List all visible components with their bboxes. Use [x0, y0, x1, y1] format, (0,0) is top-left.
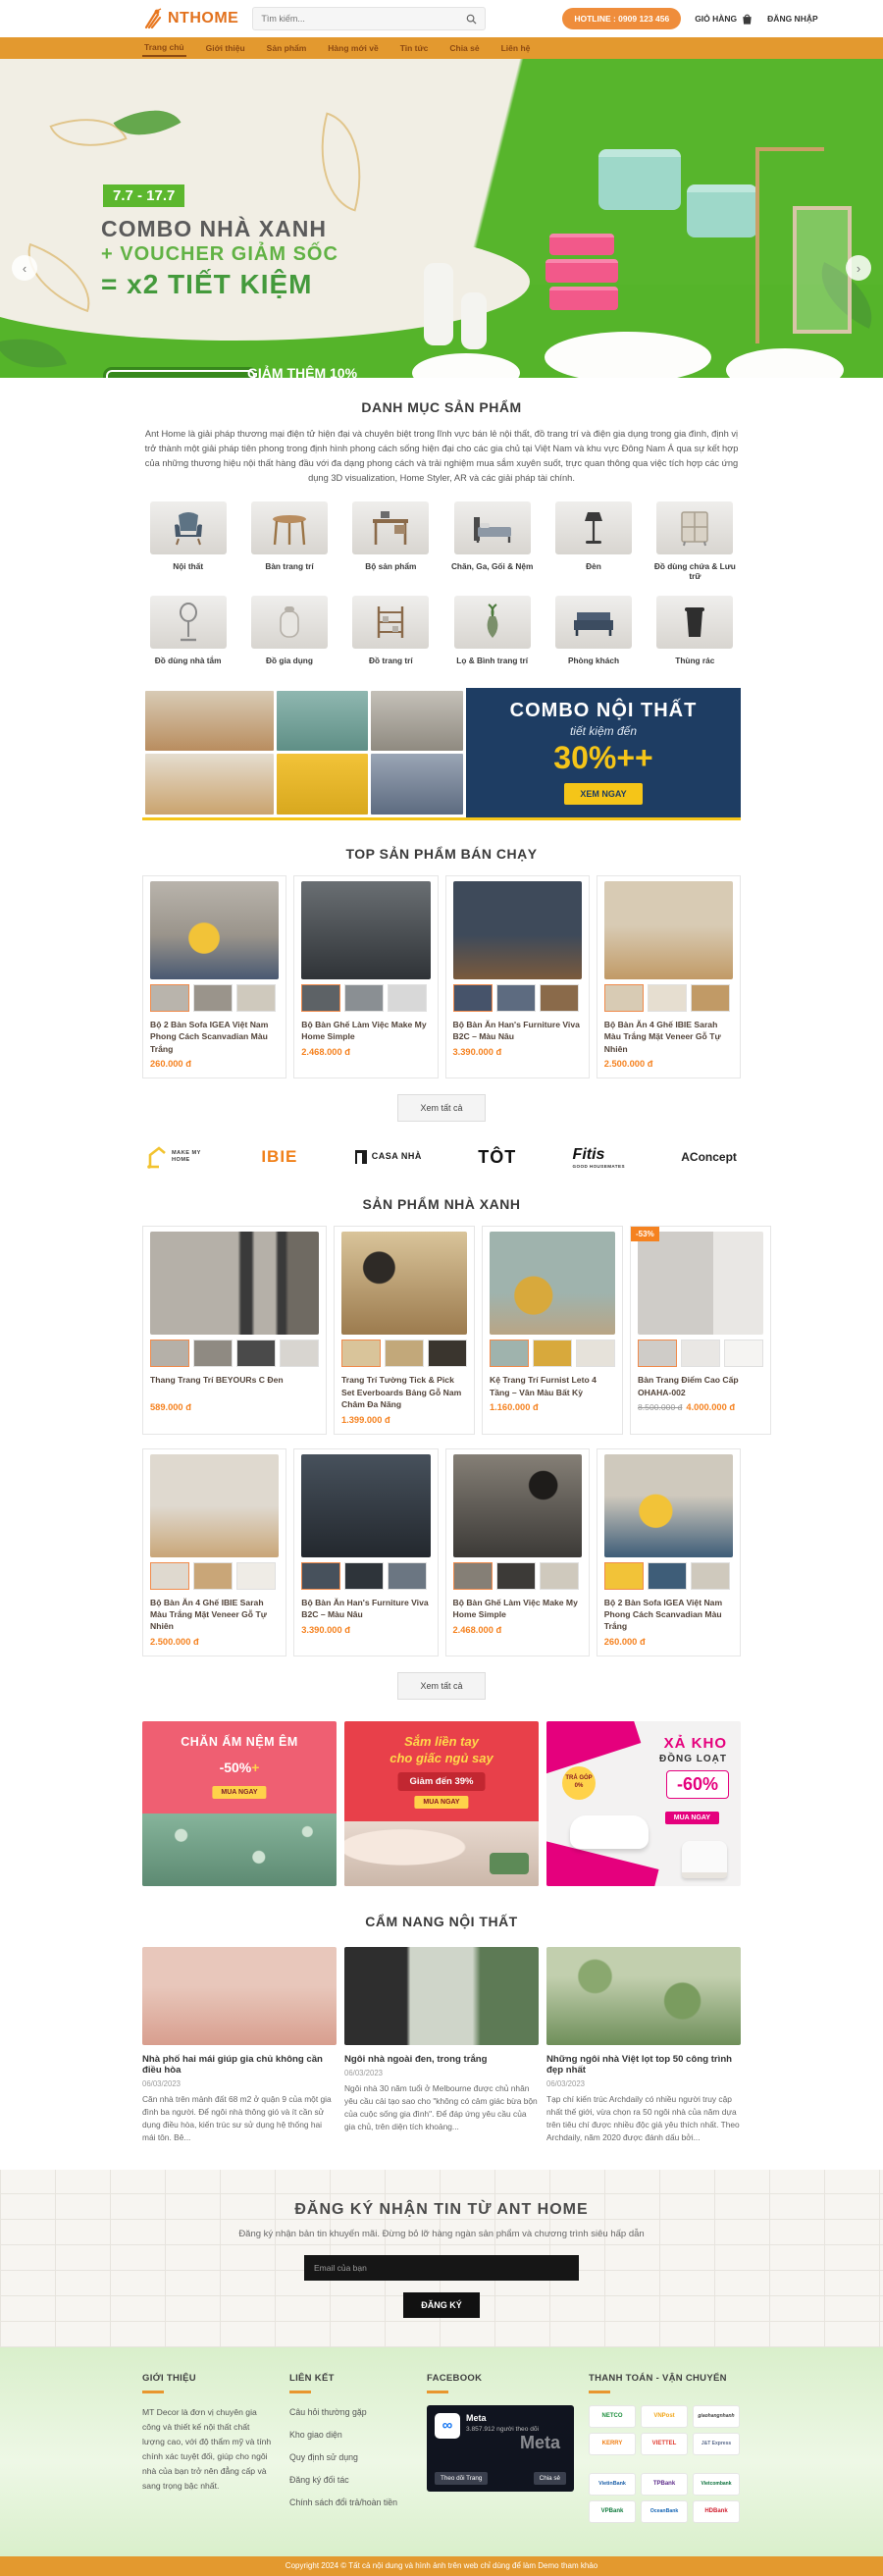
category-armchair-image [150, 501, 227, 554]
product-thumbnail[interactable] [388, 1562, 427, 1590]
nav-item-home[interactable]: Trang chủ [142, 39, 186, 57]
combo-discount: 30%++ [553, 742, 652, 773]
footer-link-terms[interactable]: Quy định sử dụng [289, 2450, 427, 2464]
category-bathroom[interactable]: Đồ dùng nhà tắm [142, 596, 234, 666]
hero-tower-fan-image [424, 263, 453, 345]
category-trash-bins[interactable]: Thùng rác [649, 596, 741, 666]
product-card[interactable]: Bộ Bàn Ăn 4 Ghế IBIE Sarah Màu Trắng Mặt… [597, 875, 741, 1078]
footer-link-faq[interactable]: Câu hỏi thường gặp [289, 2405, 427, 2419]
pillow-photo [490, 1853, 529, 1874]
product-thumbnail[interactable] [496, 984, 536, 1012]
blog-post-title[interactable]: Nhà phố hai mái giúp gia chủ không cần đ… [142, 2054, 337, 2076]
footer-link-returns[interactable]: Chính sách đổi trả/hoàn tiền [289, 2496, 427, 2509]
meta-watermark: Meta [520, 2433, 560, 2453]
search-input[interactable] [261, 14, 466, 24]
bathtub-photo [570, 1815, 649, 1849]
category-grid-row1: Nội thất Bàn trang trí Bộ sản phẩm Chăn,… [142, 501, 741, 583]
meta-logo-icon: ∞ [435, 2413, 460, 2439]
product-price: 260.000 đ [604, 1637, 733, 1647]
categories-description: Ant Home là giải pháp thương mại điện tử… [142, 427, 741, 486]
product-thumbnail[interactable] [385, 1340, 424, 1367]
payment-logo: J&T Express [693, 2433, 740, 2455]
payment-logo: KERRY [589, 2433, 636, 2455]
footer-links-column: LIÊN KẾT Câu hỏi thường gặp Kho giao diệ… [289, 2373, 427, 2523]
brand-tot[interactable]: TÔT [478, 1147, 516, 1168]
product-card[interactable]: Kệ Trang Trí Furnist Leto 4 Tầng – Vân M… [482, 1226, 623, 1434]
promo-title-line1: Sắm liền tay [344, 1733, 539, 1751]
blog-post-date: 06/03/2023 [344, 2069, 539, 2077]
product-name[interactable]: Bộ Bàn Ghế Làm Việc Make My Home Simple [301, 1019, 430, 1043]
product-thumbnail[interactable] [604, 984, 644, 1012]
product-thumbnail[interactable] [428, 1340, 467, 1367]
promo-banner-bedding[interactable]: CHĂN ẤM NỆM ÊM -50%+ MUA NGAY [142, 1721, 337, 1886]
product-price: 3.390.000 đ [301, 1625, 430, 1635]
combo-banner[interactable]: COMBO NỘI THẤT tiết kiệm đến 30%++ XEM N… [142, 688, 741, 820]
copyright-text: Copyright 2024 © Tất cả nội dung và hình… [286, 2561, 597, 2570]
product-thumbnail[interactable] [648, 1562, 687, 1590]
product-thumbnail[interactable] [576, 1340, 615, 1367]
product-card[interactable]: -53% Bàn Trang Điểm Cao Cấp OHAHA-002 8.… [630, 1226, 771, 1434]
product-name[interactable]: Bộ Bàn Ăn Han's Furniture Viva B2C – Màu… [453, 1019, 582, 1043]
category-label: Thùng rác [649, 656, 741, 666]
product-thumbnail[interactable] [638, 1340, 677, 1367]
payment-grid-gap [589, 2460, 740, 2468]
blog-post-image[interactable] [142, 1947, 337, 2045]
product-thumbnail[interactable] [301, 984, 340, 1012]
product-thumbnail[interactable] [193, 1340, 233, 1367]
heading-underline [589, 2391, 610, 2393]
category-label: Bàn trang trí [243, 561, 335, 572]
product-thumbnail[interactable] [496, 1562, 536, 1590]
product-name[interactable]: Trang Trí Tường Tick & Pick Set Everboar… [341, 1374, 467, 1410]
facebook-follow-button[interactable]: Theo dõi Trang [435, 2472, 488, 2485]
nav-item-news[interactable]: Tin tức [398, 40, 431, 56]
product-thumbnail[interactable] [388, 984, 427, 1012]
category-mirror-stand-image [150, 596, 227, 649]
hero-banner[interactable]: 7.7 - 17.7 COMBO NHÀ XANH + VOUCHER GIẢM… [0, 59, 883, 378]
product-card[interactable]: Thang Trang Trí BEYOURs C Đen 589.000 đ [142, 1226, 327, 1434]
product-image[interactable] [341, 1232, 467, 1335]
nav-item-share[interactable]: Chia sẻ [447, 40, 481, 56]
product-thumbnail[interactable] [691, 1562, 730, 1590]
product-name[interactable]: Bộ Bàn Ăn Han's Furniture Viva B2C – Màu… [301, 1597, 430, 1621]
top-products-heading: TOP SẢN PHẨM BÁN CHẠY [142, 846, 741, 862]
category-label: Nội thất [142, 561, 234, 572]
blog-post-date: 06/03/2023 [546, 2079, 741, 2088]
ant-logo-icon [142, 8, 164, 29]
hero-pink-container-image [545, 259, 618, 283]
discount-badge: -53% [631, 1227, 659, 1241]
newsletter-title: ĐĂNG KÝ NHẬN TIN TỪ ANT HOME [0, 2201, 883, 2219]
product-image[interactable] [301, 881, 430, 979]
product-name[interactable]: Bộ Bàn Ăn 4 Ghế IBIE Sarah Màu Trắng Mặt… [150, 1597, 279, 1633]
search-icon[interactable] [466, 14, 477, 25]
facebook-page-name[interactable]: Meta [466, 2413, 487, 2423]
product-name[interactable]: Bộ Bàn Ghế Làm Việc Make My Home Simple [453, 1597, 582, 1621]
payment-logo: TPBank [641, 2473, 688, 2496]
main-navigation: Trang chủ Giới thiệu Sản phẩm Hàng mới v… [0, 37, 883, 59]
product-thumbnail[interactable] [681, 1340, 720, 1367]
payment-logo: NETCO [589, 2405, 636, 2428]
brand-make-my-home[interactable]: MAKE MY HOME [146, 1145, 205, 1169]
product-image[interactable] [490, 1232, 615, 1335]
product-card[interactable]: Bộ 2 Bàn Sofa IGEA Việt Nam Phong Cách S… [597, 1448, 741, 1656]
hero-pink-container-image [549, 234, 614, 255]
brand-ibie[interactable]: IBIE [261, 1147, 297, 1167]
category-trash-bin-image [656, 596, 733, 649]
combo-subtitle: tiết kiệm đến [570, 724, 637, 738]
hero-cooler-box-image [687, 184, 757, 237]
category-grid-row2: Đồ dùng nhà tắm Đồ gia dụng Đồ trang trí… [142, 596, 741, 666]
category-vases[interactable]: Lọ & Bình trang trí [446, 596, 538, 666]
payment-logo: Vietcombank [693, 2473, 740, 2496]
product-name[interactable]: Kệ Trang Trí Furnist Leto 4 Tầng – Vân M… [490, 1374, 615, 1398]
blog-post-date: 06/03/2023 [142, 2079, 337, 2088]
heading-underline [427, 2391, 448, 2393]
blog-post-title[interactable]: Ngôi nhà ngoài đen, trong trắng [344, 2054, 539, 2065]
combo-collage-image [142, 688, 466, 817]
product-image[interactable] [150, 881, 279, 979]
blog-post-excerpt: Ngôi nhà 30 năm tuổi ở Melbourne được ch… [344, 2082, 539, 2133]
product-price: 3.390.000 đ [453, 1047, 582, 1057]
payment-logo: VNPost [641, 2405, 688, 2428]
product-image[interactable] [638, 1232, 763, 1335]
promo-title-line2: ĐỒNG LOẠT [659, 1754, 727, 1764]
product-name[interactable]: Bộ 2 Bàn Sofa IGEA Việt Nam Phong Cách S… [150, 1019, 279, 1055]
blog-post-excerpt: Căn nhà trên mảnh đất 68 m2 ở quận 9 của… [142, 2093, 337, 2144]
category-bed-image [454, 501, 531, 554]
bedding-photo [142, 1814, 337, 1886]
product-image[interactable] [604, 881, 733, 979]
payment-logo: OceanBank [641, 2500, 688, 2523]
armchair-photo [682, 1841, 727, 1878]
promo-banners-row: CHĂN ẤM NỆM ÊM -50%+ MUA NGAY Sắm liền t… [142, 1721, 741, 1886]
blog-post-excerpt: Tạp chí kiến trúc Archdaily có nhiều ngư… [546, 2093, 741, 2144]
footer-link-partner[interactable]: Đăng ký đối tác [289, 2473, 427, 2487]
product-thumbnail[interactable] [344, 984, 384, 1012]
brand-aconcept[interactable]: AConcept [681, 1150, 737, 1164]
newsletter-subtitle: Đăng ký nhận bản tin khuyến mãi. Đừng bỏ… [0, 2229, 883, 2239]
promo-discount: -60% [666, 1770, 729, 1799]
category-decor[interactable]: Đồ trang trí [345, 596, 437, 666]
payment-logos-grid: NETCO VNPost giaohangnhanh KERRY VIETTEL… [589, 2405, 741, 2523]
product-thumbnail[interactable] [280, 1340, 319, 1367]
hotline-button[interactable]: HOTLINE : 0909 123 456 [562, 8, 681, 29]
category-label: Đồ dùng nhà tắm [142, 656, 234, 666]
blog-grid: Nhà phố hai mái giúp gia chủ không cần đ… [142, 1947, 741, 2144]
payment-logo: VietinBank [589, 2473, 636, 2496]
blog-heading: CẨM NANG NỘI THẤT [142, 1914, 741, 1929]
product-thumbnail[interactable] [691, 984, 730, 1012]
promo-title: CHĂN ẤM NỆM ÊM [142, 1735, 337, 1749]
blog-card[interactable]: Những ngôi nhà Việt lọt top 50 công trìn… [546, 1947, 741, 2144]
product-thumbnail[interactable] [648, 984, 687, 1012]
facebook-followers: 3.857.912 người theo dõi [466, 2426, 539, 2433]
product-old-price: 8.500.000 đ [638, 1402, 682, 1412]
promo-title: Sắm liền tay cho giấc ngủ say [344, 1733, 539, 1767]
gold-leaf-decor [303, 112, 378, 211]
copyright-bar: Copyright 2024 © Tất cả nội dung và hình… [0, 2556, 883, 2576]
blog-card[interactable]: Nhà phố hai mái giúp gia chủ không cần đ… [142, 1947, 337, 2144]
category-furniture[interactable]: Nội thất [142, 501, 234, 583]
promo-banner-sleep[interactable]: Sắm liền tay cho giấc ngủ say Giảm đến 3… [344, 1721, 539, 1886]
product-thumbnail[interactable] [453, 1562, 493, 1590]
brand-label: CASA NHÀ [372, 1152, 422, 1162]
category-label: Đèn [547, 561, 639, 572]
facebook-page-widget[interactable]: ∞ Meta 3.857.912 người theo dõi Meta The… [427, 2405, 574, 2492]
category-canister-image [251, 596, 328, 649]
cart-button[interactable]: GIỎ HÀNG [695, 13, 753, 26]
newsletter-submit-button[interactable]: ĐĂNG KÝ [403, 2292, 480, 2318]
newsletter-email-input[interactable] [304, 2255, 579, 2281]
site-logo[interactable]: NTHOME [142, 8, 238, 29]
promo-discount: Giảm đến 39% [398, 1772, 486, 1791]
product-image[interactable] [150, 1454, 279, 1557]
product-card[interactable]: Bộ Bàn Ghế Làm Việc Make My Home Simple … [445, 1448, 590, 1656]
category-lamp-image [555, 501, 632, 554]
top-products-grid: Bộ 2 Bàn Sofa IGEA Việt Nam Phong Cách S… [142, 875, 741, 1078]
hero-shelf-image [793, 206, 852, 334]
product-name[interactable]: Bộ Bàn Ăn 4 Ghế IBIE Sarah Màu Trắng Mặt… [604, 1019, 733, 1055]
product-price: 589.000 đ [150, 1402, 319, 1412]
product-thumbnail[interactable] [150, 1562, 189, 1590]
category-storage[interactable]: Đồ dùng chứa & Lưu trữ [649, 501, 741, 583]
facebook-share-button[interactable]: Chia sẻ [534, 2472, 566, 2485]
footer-links-heading: LIÊN KẾT [289, 2373, 427, 2384]
promo-discount-value: -50% [220, 1760, 252, 1775]
header: NTHOME HOTLINE : 0909 123 456 GIỎ HÀNG Đ… [0, 0, 883, 37]
promo-discount: -50%+ [142, 1755, 337, 1778]
category-label: Chăn, Ga, Gối & Nệm [446, 561, 538, 572]
category-desk-image [352, 501, 429, 554]
login-button[interactable]: ĐĂNG NHẬP [767, 14, 817, 24]
category-table-image [251, 501, 328, 554]
hero-pedestal [545, 332, 711, 378]
hero-promo-title: GIẢM THÊM 10% [247, 365, 357, 378]
product-thumbnail[interactable] [533, 1340, 572, 1367]
login-label: ĐĂNG NHẬP [767, 14, 817, 24]
footer-facebook-heading: FACEBOOK [427, 2373, 589, 2384]
view-all-button[interactable]: Xem tất cả [397, 1094, 485, 1122]
product-thumbnail[interactable] [301, 1562, 340, 1590]
green-products-heading: SẢN PHẨM NHÀ XANH [142, 1196, 741, 1212]
gold-leaf-decor [49, 102, 127, 163]
product-price: 2.468.000 đ [301, 1047, 430, 1057]
footer-link-themes[interactable]: Kho giao diện [289, 2428, 427, 2442]
category-lamps[interactable]: Đèn [547, 501, 639, 583]
category-label: Đồ trang trí [345, 656, 437, 666]
product-thumbnail[interactable] [236, 984, 276, 1012]
product-price: 2.500.000 đ [604, 1059, 733, 1069]
brand-label: MAKE MY HOME [172, 1150, 205, 1165]
logo-text: NTHOME [168, 10, 238, 27]
product-price: 1.160.000 đ [490, 1402, 615, 1412]
product-image[interactable] [150, 1232, 319, 1335]
magenta-ribbon [546, 1721, 641, 1779]
product-thumbnail[interactable] [453, 984, 493, 1012]
promo-discount-suffix: + [251, 1760, 259, 1775]
category-sofa-image [555, 596, 632, 649]
blog-card[interactable]: Ngôi nhà ngoài đen, trong trắng 06/03/20… [344, 1947, 539, 2144]
promo-title-line2: cho giấc ngủ say [344, 1750, 539, 1767]
cart-label: GIỎ HÀNG [695, 14, 737, 24]
blog-post-title[interactable]: Những ngôi nhà Việt lọt top 50 công trìn… [546, 2054, 741, 2076]
product-thumbnail[interactable] [540, 1562, 579, 1590]
product-thumbnail[interactable] [344, 1562, 384, 1590]
footer: GIỚI THIỆU MT Decor là đơn vị chuyên gia… [0, 2347, 883, 2556]
product-thumbnail[interactable] [341, 1340, 381, 1367]
hero-pink-container-image [549, 287, 618, 310]
product-thumbnail[interactable] [604, 1562, 644, 1590]
payment-logo: VIETTEL [641, 2433, 688, 2455]
brand-sublabel: GOOD HOUSEMATES [573, 1164, 625, 1169]
category-decor-table[interactable]: Bàn trang trí [243, 501, 335, 583]
hero-cooler-box-image [598, 149, 681, 210]
combo-cta-button[interactable]: XEM NGAY [564, 783, 642, 805]
heading-underline [289, 2391, 311, 2393]
product-card[interactable]: Bộ 2 Bàn Sofa IGEA Việt Nam Phong Cách S… [142, 875, 286, 1078]
footer-payment-heading: THANH TOÁN - VẬN CHUYỂN [589, 2373, 741, 2384]
blog-post-image[interactable] [546, 1947, 741, 2045]
brand-label: Fitis [573, 1146, 605, 1163]
green-products-grid-row1: Thang Trang Trí BEYOURs C Đen 589.000 đ … [142, 1226, 741, 1434]
product-price: 2.468.000 đ [453, 1625, 582, 1635]
product-price: 1.399.000 đ [341, 1415, 467, 1425]
product-new-price: 4.000.000 đ [686, 1402, 735, 1412]
carousel-prev-icon[interactable]: ‹ [12, 255, 37, 281]
product-thumbnail[interactable] [150, 1340, 189, 1367]
footer-payment-column: THANH TOÁN - VẬN CHUYỂN NETCO VNPost gia… [589, 2373, 741, 2523]
category-label: Phòng khách [547, 656, 639, 666]
product-card[interactable]: Bộ Bàn Ăn Han's Furniture Viva B2C – Màu… [445, 875, 590, 1078]
product-thumbnail[interactable] [540, 984, 579, 1012]
category-cabinet-image [656, 501, 733, 554]
category-label: Bộ sản phẩm [345, 561, 437, 572]
category-shelf-image [352, 596, 429, 649]
payment-logo: giaohangnhanh [693, 2405, 740, 2428]
category-product-set[interactable]: Bộ sản phẩm [345, 501, 437, 583]
product-name[interactable]: Thang Trang Trí BEYOURs C Đen [150, 1374, 319, 1398]
promo-title-line1: XẢ KHO [664, 1735, 727, 1752]
green-leaf-decor [114, 93, 182, 151]
category-label: Đồ gia dụng [243, 656, 335, 666]
carousel-next-icon[interactable]: › [846, 255, 871, 281]
categories-heading: DANH MỤC SẢN PHẨM [142, 399, 741, 415]
product-thumbnail[interactable] [724, 1340, 763, 1367]
category-vase-image [454, 596, 531, 649]
product-card[interactable]: Bộ Bàn Ăn Han's Furniture Viva B2C – Màu… [293, 1448, 438, 1656]
product-image[interactable] [604, 1454, 733, 1557]
promo-cta-button[interactable]: MUA NGAY [212, 1786, 266, 1799]
hero-tower-fan-image [461, 292, 487, 349]
product-image[interactable] [453, 881, 582, 979]
hero-title-line3: = x2 TIẾT KIỆM [101, 269, 313, 300]
category-label: Đồ dùng chứa & Lưu trữ [649, 561, 741, 583]
hero-date-badge: 7.7 - 17.7 [103, 184, 184, 207]
product-thumbnail[interactable] [236, 1340, 276, 1367]
green-products-grid-row2: Bộ Bàn Ăn 4 Ghế IBIE Sarah Màu Trắng Mặt… [142, 1448, 741, 1656]
search-bar[interactable] [252, 7, 486, 30]
product-card[interactable]: Bộ Bàn Ghế Làm Việc Make My Home Simple … [293, 875, 438, 1078]
product-card[interactable]: Trang Trí Tường Tick & Pick Set Everboar… [334, 1226, 475, 1434]
product-image[interactable] [453, 1454, 582, 1557]
footer-about-heading: GIỚI THIỆU [142, 2373, 289, 2384]
footer-about-column: GIỚI THIỆU MT Decor là đơn vị chuyên gia… [142, 2373, 289, 2523]
product-thumbnail[interactable] [490, 1340, 529, 1367]
promo-cta-button[interactable]: MUA NGAY [414, 1796, 468, 1809]
brand-fitis[interactable]: FitisGOOD HOUSEMATES [573, 1146, 625, 1169]
view-all-button[interactable]: Xem tất cả [397, 1672, 485, 1700]
footer-facebook-column: FACEBOOK ∞ Meta 3.857.912 người theo dõi… [427, 2373, 589, 2523]
hero-title-line2: + VOUCHER GIẢM SỐC [101, 243, 338, 266]
product-price: 2.500.000 đ [150, 1637, 279, 1647]
promo-banner-clearance[interactable]: TRẢ GÓP 0% XẢ KHO ĐỒNG LOẠT -60% MUA NGA… [546, 1721, 741, 1886]
promo-cta-button[interactable]: MUA NGAY [665, 1812, 719, 1824]
product-card[interactable]: Bộ Bàn Ăn 4 Ghế IBIE Sarah Màu Trắng Mặt… [142, 1448, 286, 1656]
nav-item-new-arrivals[interactable]: Hàng mới về [326, 40, 380, 56]
product-price: 260.000 đ [150, 1059, 279, 1069]
product-name[interactable]: Bộ 2 Bàn Sofa IGEA Việt Nam Phong Cách S… [604, 1597, 733, 1633]
hero-coupon-code-box[interactable]: NHẬP MÃ: SPACET10 [106, 370, 255, 378]
product-name[interactable]: Bàn Trang Điểm Cao Cấp OHAHA-002 [638, 1374, 763, 1398]
category-appliances[interactable]: Đồ gia dụng [243, 596, 335, 666]
product-thumbnail[interactable] [193, 1562, 233, 1590]
installment-badge: TRẢ GÓP 0% [562, 1766, 596, 1800]
door-icon [354, 1149, 368, 1165]
footer-about-text: MT Decor là đơn vị chuyên gia công và th… [142, 2405, 289, 2494]
newsletter-section: ĐĂNG KÝ NHẬN TIN TỪ ANT HOME Đăng ký nhậ… [0, 2170, 883, 2347]
product-thumbnail[interactable] [193, 984, 233, 1012]
hero-title-line1: COMBO NHÀ XANH [101, 216, 327, 242]
nav-item-about[interactable]: Giới thiệu [204, 40, 247, 56]
payment-logo: VPBank [589, 2500, 636, 2523]
product-image[interactable] [301, 1454, 430, 1557]
product-thumbnail[interactable] [236, 1562, 276, 1590]
house-icon [146, 1145, 168, 1169]
nav-item-contact[interactable]: Liên hệ [499, 40, 533, 56]
product-price: 8.500.000 đ4.000.000 đ [638, 1402, 763, 1412]
brand-casa-nha[interactable]: CASA NHÀ [354, 1149, 422, 1165]
cart-bag-icon [741, 13, 753, 26]
heading-underline [142, 2391, 164, 2393]
payment-logo: HDBank [693, 2500, 740, 2523]
category-label: Lọ & Bình trang trí [446, 656, 538, 666]
nav-item-products[interactable]: Sản phẩm [265, 40, 309, 56]
brand-logos-row: MAKE MY HOME IBIE CASA NHÀ TÔT FitisGOOD… [142, 1145, 741, 1169]
category-bedding[interactable]: Chăn, Ga, Gối & Nệm [446, 501, 538, 583]
combo-title: COMBO NỘI THẤT [510, 700, 698, 722]
product-thumbnail[interactable] [150, 984, 189, 1012]
blog-post-image[interactable] [344, 1947, 539, 2045]
category-living-room[interactable]: Phòng khách [547, 596, 639, 666]
